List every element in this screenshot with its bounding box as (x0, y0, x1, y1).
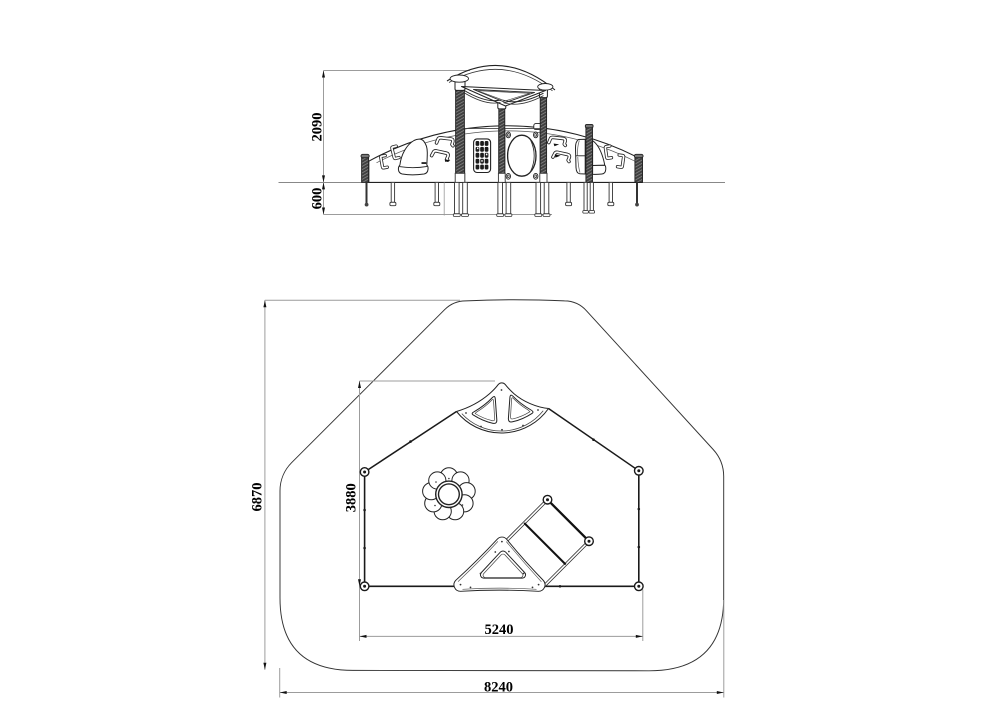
svg-text:5240: 5240 (485, 622, 514, 638)
svg-text:2090: 2090 (310, 113, 326, 142)
svg-text:600: 600 (310, 188, 326, 210)
svg-text:6870: 6870 (250, 483, 266, 512)
svg-text:8240: 8240 (484, 680, 513, 696)
svg-text:3880: 3880 (344, 483, 360, 512)
